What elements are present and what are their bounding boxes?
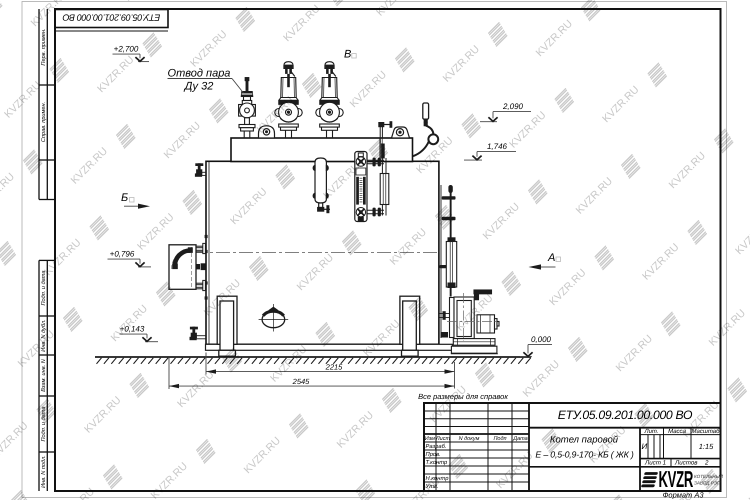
svg-text:И: И	[642, 442, 648, 451]
svg-text:2545: 2545	[292, 377, 311, 386]
svg-text:ЕТУ.05.09.201.00.000 ВО: ЕТУ.05.09.201.00.000 ВО	[62, 13, 160, 23]
svg-text:Отвод пара: Отвод пара	[168, 68, 231, 80]
svg-text:Т.контр: Т.контр	[426, 460, 449, 466]
svg-text:ЕТУ.05.09.201.00.000 ВО: ЕТУ.05.09.201.00.000 ВО	[558, 408, 693, 422]
svg-text:В: В	[344, 49, 351, 61]
svg-text:2: 2	[704, 460, 709, 467]
svg-text:Лит.: Лит.	[643, 428, 658, 435]
svg-text:+2,700: +2,700	[114, 45, 139, 54]
svg-text:А: А	[547, 252, 555, 264]
svg-text:2215: 2215	[325, 362, 344, 371]
svg-text:2,090: 2,090	[502, 102, 524, 111]
svg-text:Справ. примен.: Справ. примен.	[41, 102, 47, 142]
svg-text:Подп. и дата: Подп. и дата	[40, 270, 47, 305]
svg-text:Инв. N подл.: Инв. N подл.	[40, 455, 47, 488]
svg-text:0,000: 0,000	[531, 335, 552, 344]
svg-text:Пров.: Пров.	[426, 452, 441, 458]
svg-text:Разраб.: Разраб.	[426, 443, 447, 450]
svg-text:1,746: 1,746	[487, 142, 508, 151]
svg-text:Изм: Изм	[425, 436, 435, 442]
svg-text:1:15: 1:15	[699, 442, 714, 451]
svg-text:Перв. примен.: Перв. примен.	[41, 28, 47, 65]
svg-text:Е – 0,5-0,9-170- КБ ( ЖК ): Е – 0,5-0,9-170- КБ ( ЖК )	[535, 450, 633, 460]
svg-text:Взам. инв. N: Взам. инв. N	[41, 358, 47, 392]
svg-text:Ду 32: Ду 32	[183, 81, 214, 93]
svg-text:Подп: Подп	[493, 436, 506, 442]
svg-text:+0,796: +0,796	[110, 250, 135, 259]
svg-text:Лист: Лист	[435, 436, 451, 442]
svg-text:N докум: N докум	[459, 436, 480, 442]
svg-text:Б: Б	[121, 192, 128, 204]
svg-text:Дата: Дата	[512, 436, 528, 442]
svg-text:KVZR: KVZR	[659, 466, 694, 492]
